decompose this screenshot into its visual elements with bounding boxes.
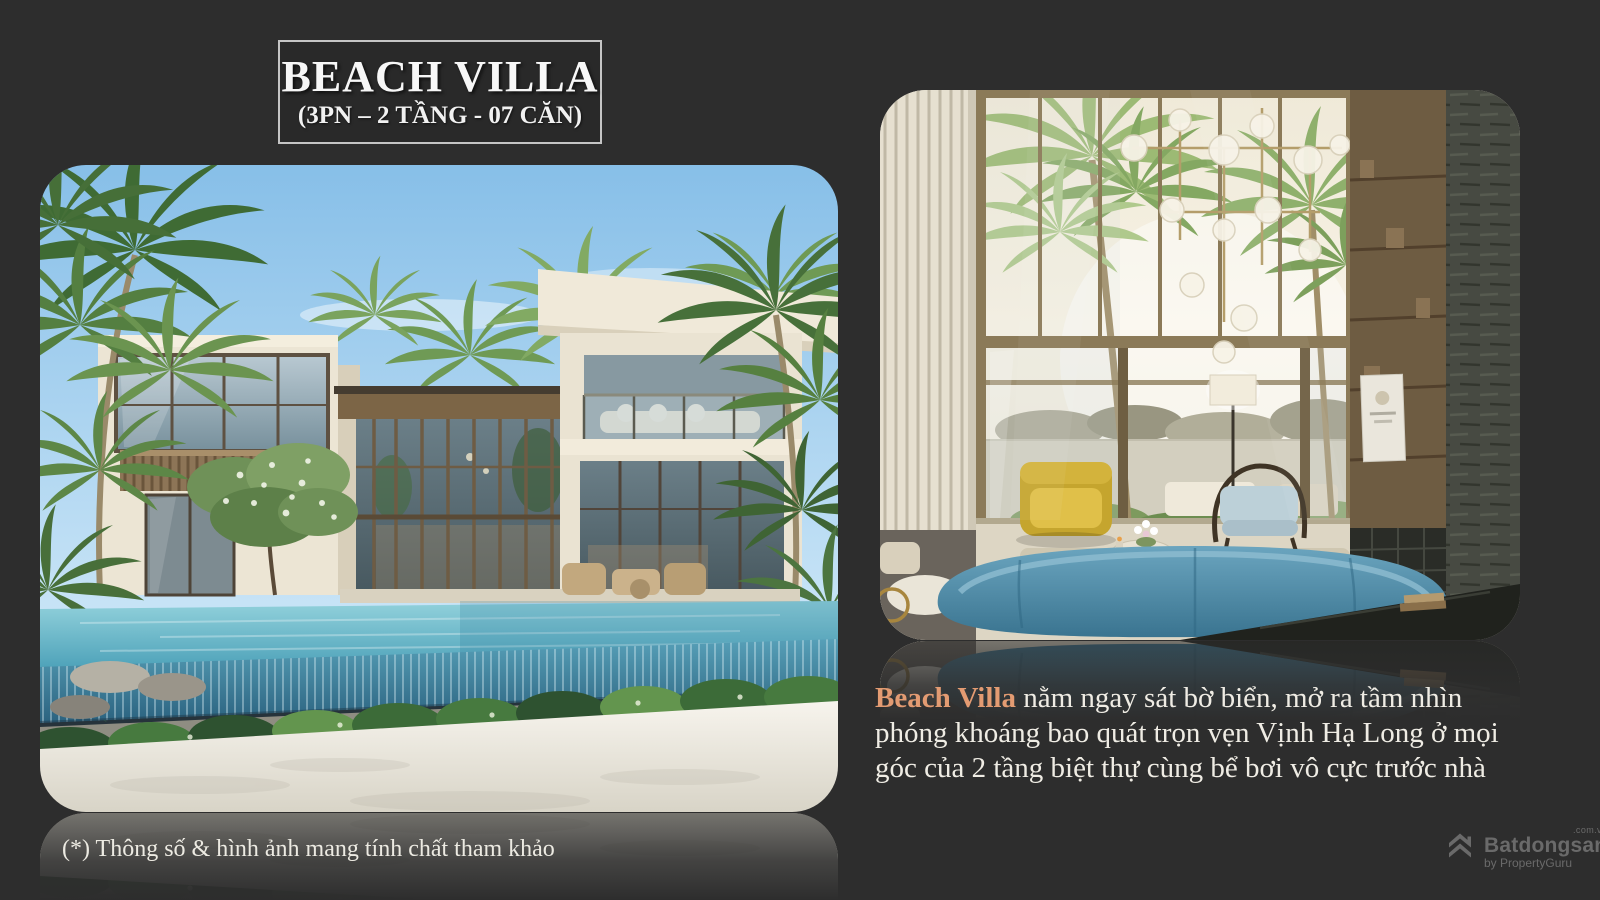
batdongsan-house-icon	[1443, 829, 1477, 868]
description-lead: Beach Villa	[875, 682, 1016, 714]
slide-background: BEACH VILLA (3PN – 2 TẦNG - 07 CĂN) Beac…	[0, 0, 1600, 900]
description: Beach Villa nằm ngay sát bờ biển, mở ra …	[875, 681, 1525, 786]
title-box: BEACH VILLA (3PN – 2 TẦNG - 07 CĂN)	[278, 40, 602, 144]
page-title: BEACH VILLA	[281, 53, 598, 101]
page-subtitle: (3PN – 2 TẦNG - 07 CĂN)	[298, 101, 582, 131]
watermark: .com.vn Batdongsan by PropertyGuru	[1443, 826, 1600, 870]
watermark-byline: by PropertyGuru	[1484, 857, 1600, 870]
exterior-villa-photo	[40, 165, 838, 812]
footnote: (*) Thông số & hình ảnh mang tính chất t…	[62, 836, 555, 863]
interior-villa-photo	[880, 90, 1520, 640]
watermark-brand: Batdongsan	[1484, 835, 1600, 856]
